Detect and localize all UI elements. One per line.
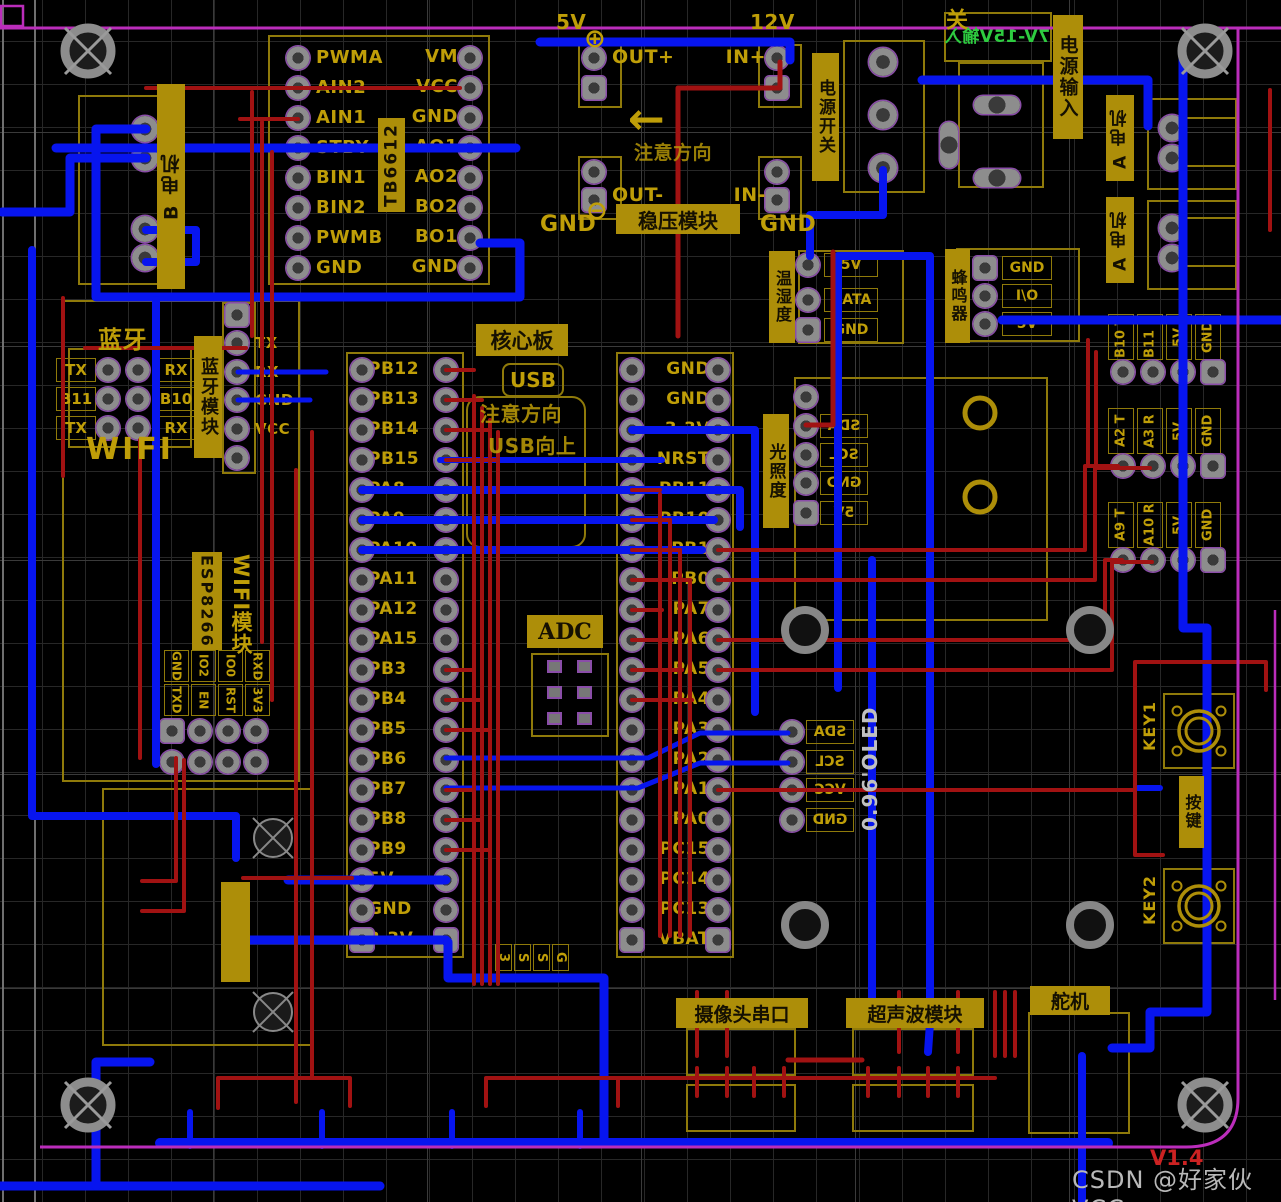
servo-tag: 舵机 xyxy=(1030,986,1110,1015)
bluetooth-title: 蓝牙 xyxy=(98,320,147,355)
regulator-gnd-right: GND xyxy=(760,212,816,237)
wifi-title: WIFI xyxy=(86,432,174,467)
bluetooth-module-tag: 蓝牙模块 xyxy=(194,336,222,458)
rail-12v-label: 12V xyxy=(750,10,795,34)
power-switch-tag: 电源开关 xyxy=(812,53,839,181)
usb-note-2: USB向上 xyxy=(488,430,576,459)
camera-tag: 摄像头串口 xyxy=(676,998,808,1028)
plus-terminal-icon: ⊕ xyxy=(584,24,606,54)
key1-label: KEY1 xyxy=(1140,694,1159,758)
power-input-tag: 电源输入 xyxy=(1053,15,1083,139)
keys-tag: 按键 xyxy=(1179,776,1204,848)
ultrasonic-tag: 超声波模块 xyxy=(846,998,984,1028)
oled-label: 0.96'OLED xyxy=(858,710,882,828)
motor-b-tag: B 电机 xyxy=(157,84,185,289)
usb-note-1: 注意方向 xyxy=(480,398,562,427)
esp8266-tag: ESP8266 xyxy=(192,552,222,650)
regulator-note: 注意方向 xyxy=(634,138,712,165)
adc-tag: ADC xyxy=(527,615,603,648)
minus-terminal-icon: ⊖ xyxy=(586,196,608,226)
temp-humidity-tag: 温湿度 xyxy=(769,251,795,343)
key2-label: KEY2 xyxy=(1140,868,1159,932)
regulator-out-plus: OUT+ xyxy=(612,46,674,68)
tb6612-tag: TB6612 xyxy=(378,118,405,212)
motor-a-tag-1: A 电机 xyxy=(1106,95,1134,181)
switch-char-label: 关 xyxy=(938,4,970,34)
regulator-in-minus: IN- xyxy=(702,184,766,206)
regulator-in-plus: IN+ xyxy=(700,46,766,68)
mpu6050-tag xyxy=(221,882,250,982)
esp8266-module-label: WIFI模块 xyxy=(226,546,256,664)
rail-5v-label: 5V xyxy=(556,10,586,34)
core-board-tag: 核心板 xyxy=(476,324,568,356)
pcb-layout-canvas[interactable]: PWMAVMAIN2VCCAIN1GNDSTBYAO1BIN1AO2BIN2BO… xyxy=(0,0,1281,1202)
watermark: CSDN @好家伙VCC xyxy=(1072,1160,1281,1202)
light-sensor-tag: 光照度 xyxy=(763,414,789,528)
buzzer-tag: 蜂鸣器 xyxy=(945,249,970,343)
tag-layer: TB6612 稳压模块 OUT+ IN+ OUT- IN- GND GND 5V… xyxy=(0,0,1281,1202)
usb-label-box: USB xyxy=(502,363,564,397)
regulator-tag: 稳压模块 xyxy=(616,204,740,234)
motor-a-tag-2: A 电机 xyxy=(1106,197,1134,283)
regulator-out-minus: OUT- xyxy=(612,184,664,206)
